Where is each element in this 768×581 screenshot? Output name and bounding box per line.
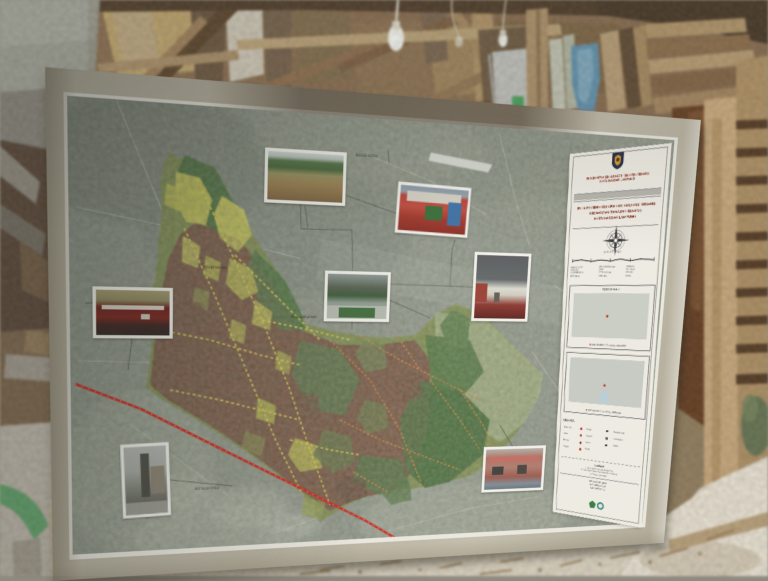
svg-text:KELURAHAN: KELURAHAN (203, 265, 227, 270)
svg-text:KEL. LABUHAN: KEL. LABUHAN (291, 315, 317, 319)
